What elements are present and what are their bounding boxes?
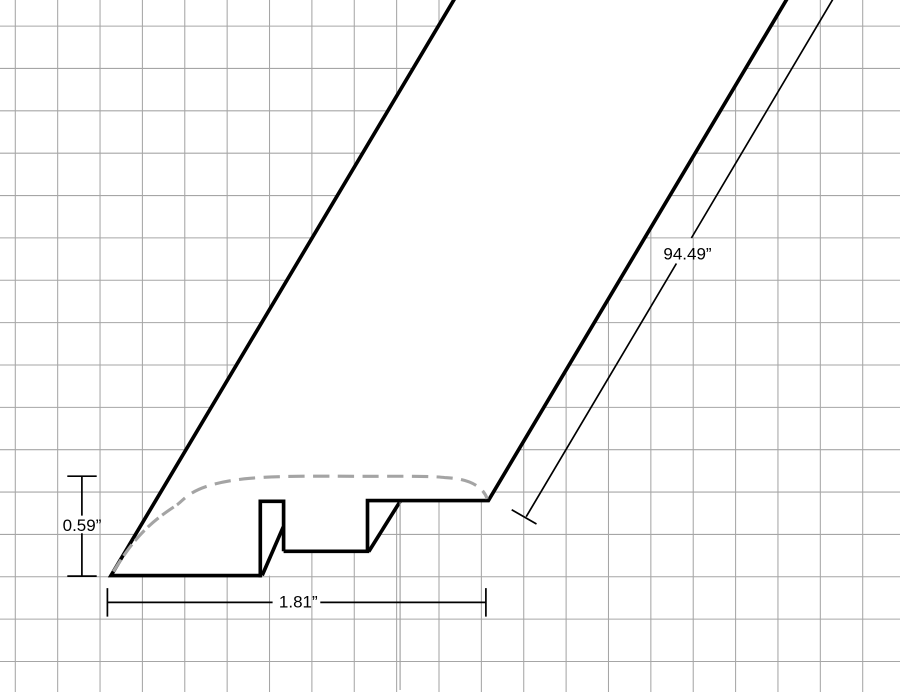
svg-text:1.81”: 1.81” (279, 592, 318, 611)
svg-text:94.49”: 94.49” (663, 245, 712, 264)
svg-text:0.59”: 0.59” (63, 516, 102, 535)
